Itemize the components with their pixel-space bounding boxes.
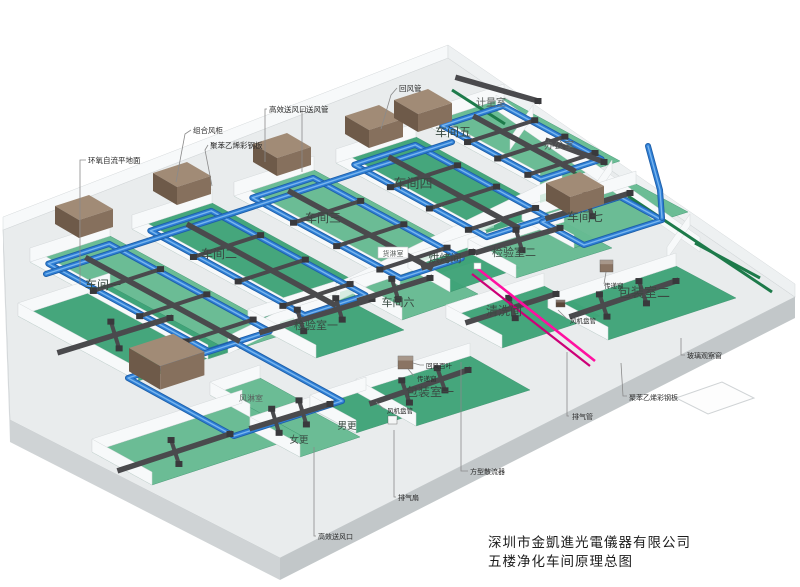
duct-flange [294, 307, 301, 313]
duct-flange [524, 172, 531, 178]
duct-flange [494, 155, 501, 161]
title-block: 深圳市金凱進光電儀器有限公司 五楼净化车间原理总图 [488, 534, 691, 570]
duct-flange [388, 276, 395, 282]
equipment-box-top [388, 416, 397, 419]
duct-flange [332, 295, 339, 301]
duct-flange [531, 117, 538, 123]
room-label-packing2: 包装室二 [618, 285, 670, 301]
callout-exhaust-pipe: 排气管 [572, 412, 593, 421]
equipment-box-top [398, 356, 413, 361]
callout-transfer-window1: 传递窗 [417, 374, 437, 383]
room-label-metrology: 计量室 [476, 96, 506, 109]
duct-flange [295, 397, 302, 403]
duct-flange [426, 205, 433, 211]
room-label-workshop7: 车间七 [567, 209, 603, 224]
drawing-title: 五楼净化车间原理总图 [488, 553, 633, 570]
duct-flange [553, 291, 560, 297]
callout-hepa-outlet-top: 高效送风口 [269, 104, 307, 114]
room-label-workshop6: 车间六 [382, 295, 415, 309]
callout-polystyrene-panel: 聚苯乙烯彩钢板 [210, 140, 263, 150]
duct-flange [427, 275, 434, 281]
diagram-canvas: 车间一 车间二 车间三 车间四 车间五 车间六 车间七 检验室一 检验室二 清洗… [0, 0, 800, 587]
duct-flange [603, 314, 610, 320]
duct-flange [339, 317, 346, 323]
duct-flange [290, 220, 297, 226]
duct-flange [268, 406, 275, 412]
room-label-women-change: 女更 [289, 434, 309, 446]
room-label-workshop1: 车间一 [85, 277, 121, 292]
duct-flange [333, 243, 340, 249]
duct-flange [357, 198, 364, 204]
duct-flange [535, 98, 542, 104]
duct-flange [454, 162, 461, 168]
callout-hepa-outlet-bottom: 高效送风口 [318, 532, 353, 541]
duct-flange [116, 345, 123, 351]
duct-flange [279, 303, 286, 309]
callout-transfer-window2: 传递窗 [604, 281, 624, 290]
duct-flange [257, 232, 264, 238]
exhaust-inlet-box [474, 263, 481, 269]
room-label-air-shower: 风淋室 [239, 393, 263, 403]
duct-flange [465, 367, 472, 373]
callout-square-diffuser: 方型散流器 [470, 467, 505, 476]
duct-flange [643, 300, 650, 306]
room-label-cleaning: 清洗间 [486, 304, 522, 318]
room-label-office: 办公室 [544, 139, 574, 152]
duct-flange [302, 257, 309, 263]
callout-return-louver: 回风百叶 [426, 361, 453, 370]
duct-flange [406, 400, 413, 406]
callout-return-duct: 回风管 [399, 83, 422, 93]
duct-flange [444, 245, 451, 251]
room-label-workshop2: 车间二 [201, 246, 237, 261]
duct-flange [561, 134, 568, 140]
room-label-men-change: 男更 [337, 421, 357, 432]
room-label-workshop3: 车间三 [305, 210, 341, 225]
callout-fan-coil1: 风机盘管 [387, 406, 414, 415]
duct-flange [190, 254, 197, 260]
callout-fan-coil2: 风机盘管 [570, 316, 597, 325]
duct-flange [398, 377, 405, 383]
duct-flange [175, 461, 182, 467]
duct-flange [493, 184, 500, 190]
duct-flange [227, 431, 234, 437]
duct-flange [465, 227, 472, 233]
equipment-box-top [600, 260, 613, 264]
room-label-cargo-shower: 货淋室 [383, 249, 404, 258]
duct-flange [136, 313, 143, 319]
duct-flange [464, 139, 471, 145]
duct-flange [400, 221, 407, 227]
duct-flange [376, 267, 383, 273]
duct-flange [513, 227, 520, 233]
callout-polystyrene-panel-right: 聚苯乙烯彩钢板 [629, 393, 678, 402]
callout-epoxy-floor: 环氧自流平地面 [88, 155, 141, 165]
callout-combined-ahu: 组合风柜 [193, 125, 223, 135]
duct-flange [627, 190, 634, 196]
company-name: 深圳市金凱進光電儀器有限公司 [488, 534, 691, 551]
duct-flange [235, 278, 242, 284]
duct-flange [596, 291, 603, 297]
duct-flange [203, 291, 210, 297]
floor-opening [676, 382, 754, 414]
room-label-workshop5: 车间五 [435, 124, 471, 139]
room-label-packing1: 包装室一 [406, 384, 454, 399]
room-label-inspection2: 检验室二 [492, 245, 536, 259]
callout-glass-window: 玻璃观察窗 [687, 351, 722, 360]
duct-flange [601, 159, 608, 165]
duct-flange [167, 315, 174, 321]
duct-flange [107, 319, 114, 325]
room-label-workshop4: 车间四 [393, 176, 432, 192]
duct-flange [557, 225, 564, 231]
duct-flange [532, 205, 539, 211]
duct-flange [327, 401, 334, 407]
duct-flange [635, 278, 642, 284]
duct-flange [157, 266, 164, 272]
room-label-baking: 烘烤间 [429, 251, 462, 265]
duct-flange [469, 249, 476, 255]
equipment-box-top [556, 300, 565, 302]
duct-flange [347, 281, 354, 287]
duct-flange [276, 430, 283, 436]
cleanroom-isometric-diagram: 车间一 车间二 车间三 车间四 车间五 车间六 车间七 检验室一 检验室二 清洗… [0, 0, 800, 587]
duct-flange [673, 278, 680, 284]
duct-flange [250, 317, 257, 323]
duct-flange [303, 421, 310, 427]
room-label-inspection1: 检验室一 [294, 318, 338, 332]
duct-flange [168, 437, 175, 443]
callout-supply-duct: 送风管 [306, 104, 329, 114]
callout-exhaust-fan: 排气扇 [398, 493, 419, 502]
